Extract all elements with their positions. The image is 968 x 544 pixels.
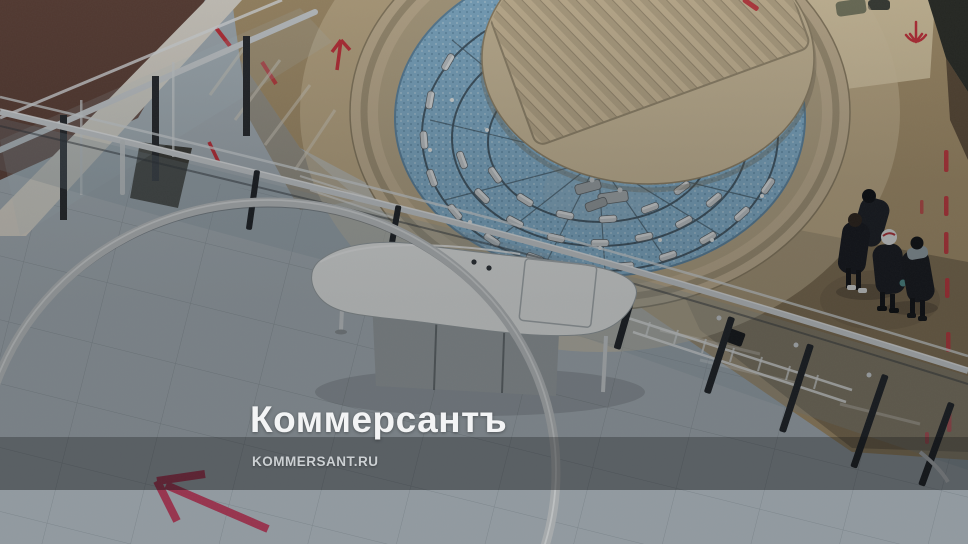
photo-grain <box>0 0 968 544</box>
brand-site-url: KOMMERSANT.RU <box>252 455 379 469</box>
brand-title: Коммерсантъ <box>250 401 507 438</box>
news-photo: Коммерсантъ KOMMERSANT.RU <box>0 0 968 544</box>
mall-atrium-photo <box>0 0 968 544</box>
